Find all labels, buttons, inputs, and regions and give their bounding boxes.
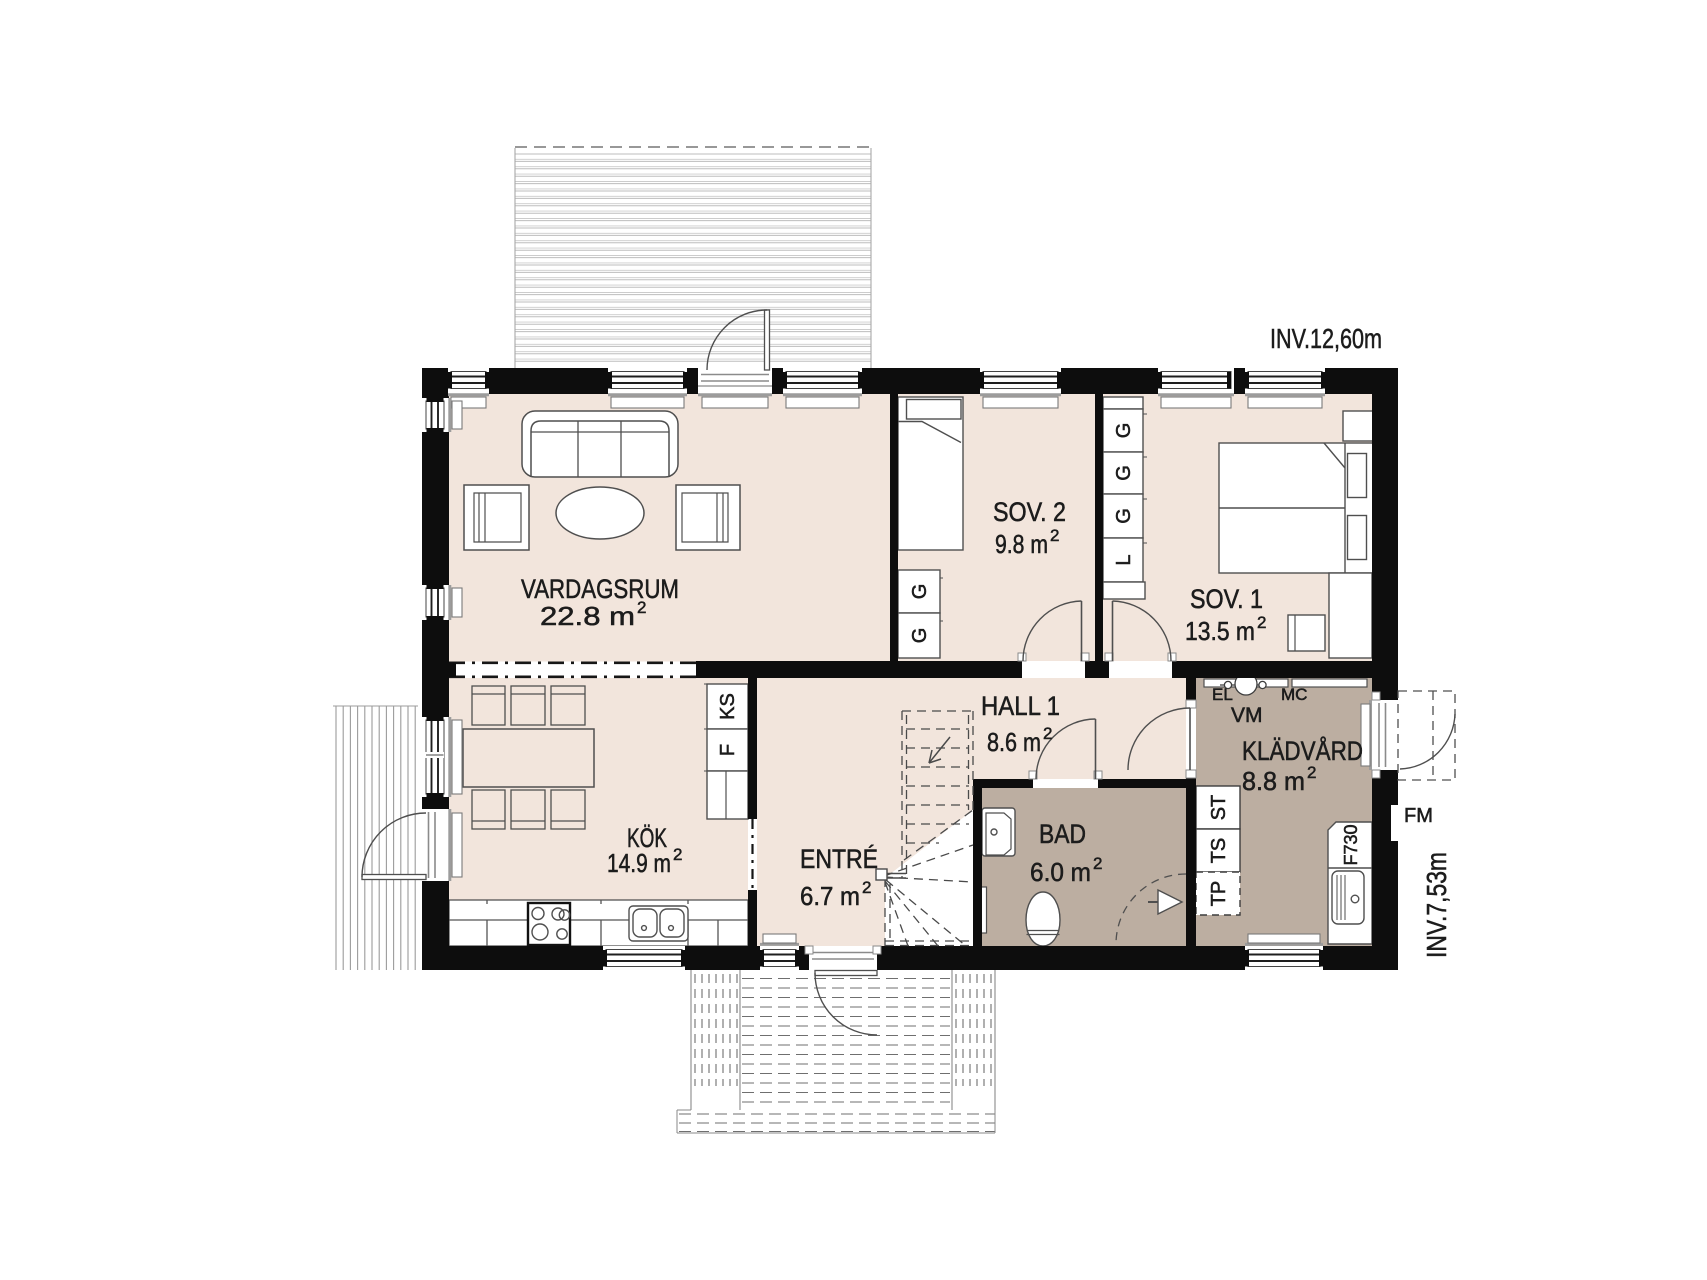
svg-text:G: G	[1113, 465, 1135, 481]
svg-text:VARDAGSRUM: VARDAGSRUM	[521, 574, 679, 604]
svg-text:INV.7,53m: INV.7,53m	[1421, 852, 1452, 958]
svg-text:6.0 m: 6.0 m	[1030, 857, 1091, 887]
svg-text:6.7 m: 6.7 m	[800, 881, 860, 911]
svg-text:SOV. 1: SOV. 1	[1190, 584, 1263, 614]
svg-text:2: 2	[1043, 724, 1052, 743]
svg-text:ENTRÉ: ENTRÉ	[800, 844, 878, 874]
svg-text:2: 2	[862, 878, 871, 897]
svg-text:TP: TP	[1208, 881, 1230, 907]
svg-text:ST: ST	[1208, 795, 1230, 821]
svg-text:2: 2	[1093, 854, 1102, 873]
svg-text:L: L	[1113, 554, 1135, 565]
svg-text:G: G	[909, 628, 931, 644]
svg-text:9.8 m: 9.8 m	[995, 529, 1048, 559]
svg-text:2: 2	[637, 598, 646, 617]
svg-text:F: F	[717, 744, 739, 756]
svg-text:BAD: BAD	[1039, 819, 1086, 849]
svg-text:FM: FM	[1404, 805, 1433, 827]
svg-text:G: G	[909, 584, 931, 600]
svg-text:INV.12,60m: INV.12,60m	[1270, 323, 1382, 354]
svg-text:2: 2	[673, 845, 682, 864]
svg-text:G: G	[1113, 508, 1135, 524]
svg-text:22.8 m: 22.8 m	[540, 601, 635, 631]
svg-text:2: 2	[1307, 763, 1316, 782]
svg-text:8.6 m: 8.6 m	[987, 727, 1041, 757]
svg-text:SOV. 2: SOV. 2	[993, 497, 1066, 527]
svg-text:8.8 m: 8.8 m	[1242, 766, 1305, 796]
svg-text:G: G	[1113, 423, 1135, 439]
svg-text:EL: EL	[1212, 685, 1233, 704]
svg-text:14.9 m: 14.9 m	[607, 848, 671, 878]
svg-text:HALL 1: HALL 1	[981, 691, 1060, 721]
svg-text:2: 2	[1257, 613, 1266, 632]
svg-text:13.5 m: 13.5 m	[1185, 616, 1255, 646]
svg-text:KS: KS	[717, 693, 739, 720]
svg-text:VM: VM	[1231, 704, 1263, 727]
svg-text:F730: F730	[1341, 824, 1361, 865]
svg-text:TS: TS	[1208, 838, 1230, 864]
svg-text:2: 2	[1050, 526, 1059, 545]
svg-text:KLÄDVÅRD: KLÄDVÅRD	[1242, 735, 1363, 766]
svg-text:MC: MC	[1281, 685, 1307, 704]
